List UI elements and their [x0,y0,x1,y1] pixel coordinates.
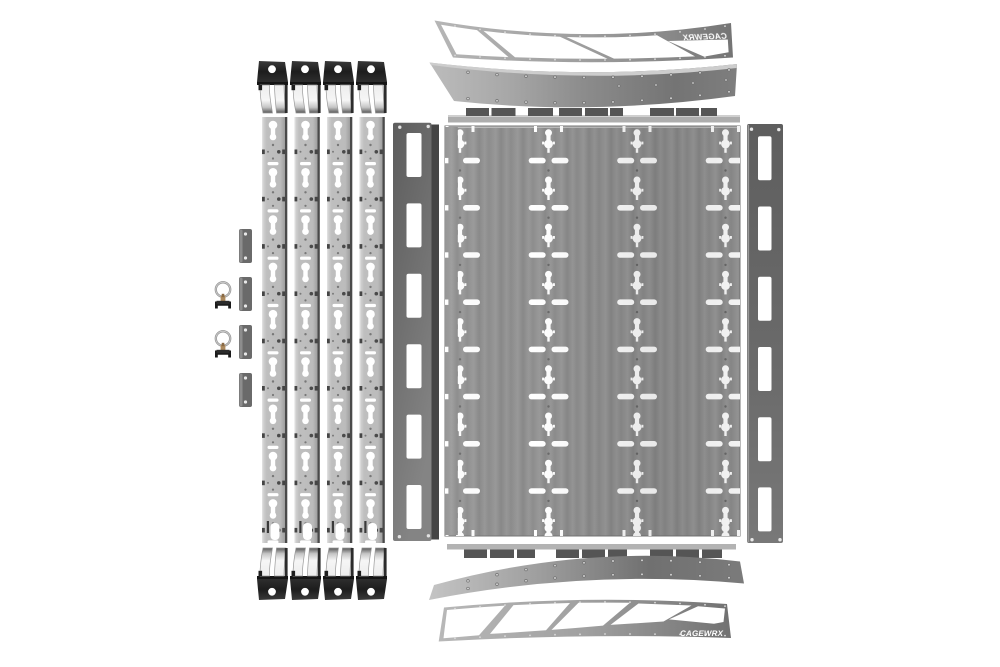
svg-text:CAGEWRX: CAGEWRX [680,629,724,638]
svg-text:CAGEWRX: CAGEWRX [682,32,727,43]
